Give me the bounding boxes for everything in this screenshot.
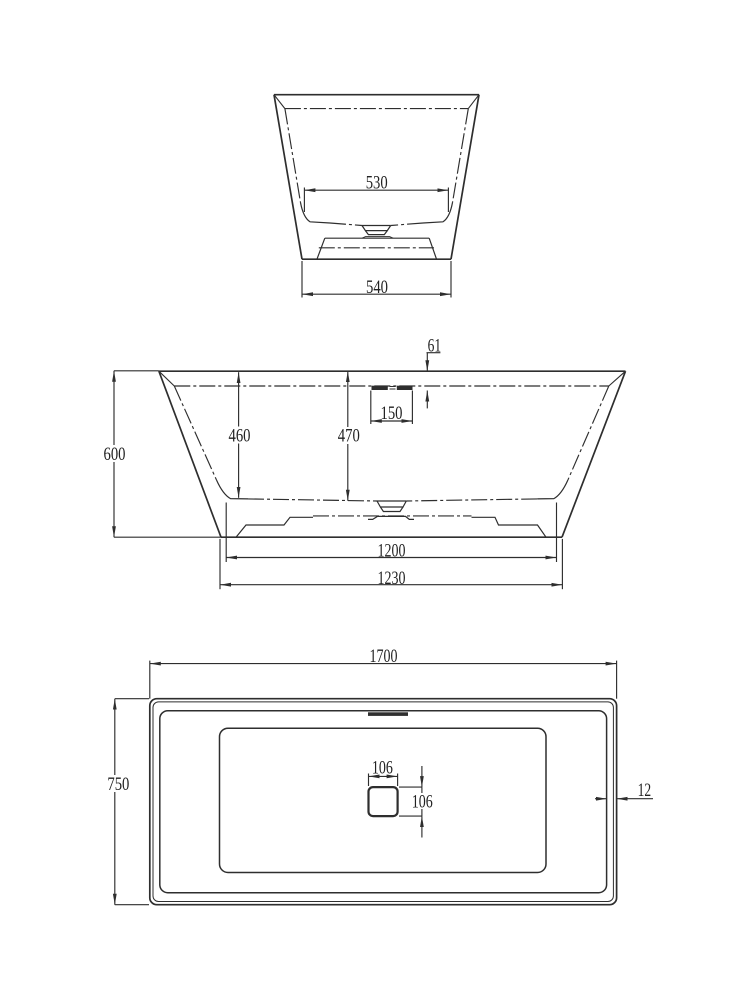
svg-text:750: 750 [107,774,129,795]
svg-text:1230: 1230 [378,568,406,589]
svg-text:12: 12 [638,780,652,801]
svg-text:106: 106 [372,757,393,778]
svg-text:61: 61 [428,336,442,357]
svg-text:1700: 1700 [370,646,398,667]
svg-text:530: 530 [366,173,388,194]
svg-text:600: 600 [104,444,126,465]
svg-text:106: 106 [412,791,433,812]
svg-text:460: 460 [229,425,251,446]
svg-text:470: 470 [338,426,360,447]
svg-text:1200: 1200 [378,540,406,561]
svg-text:150: 150 [381,403,403,424]
svg-text:540: 540 [366,277,388,298]
